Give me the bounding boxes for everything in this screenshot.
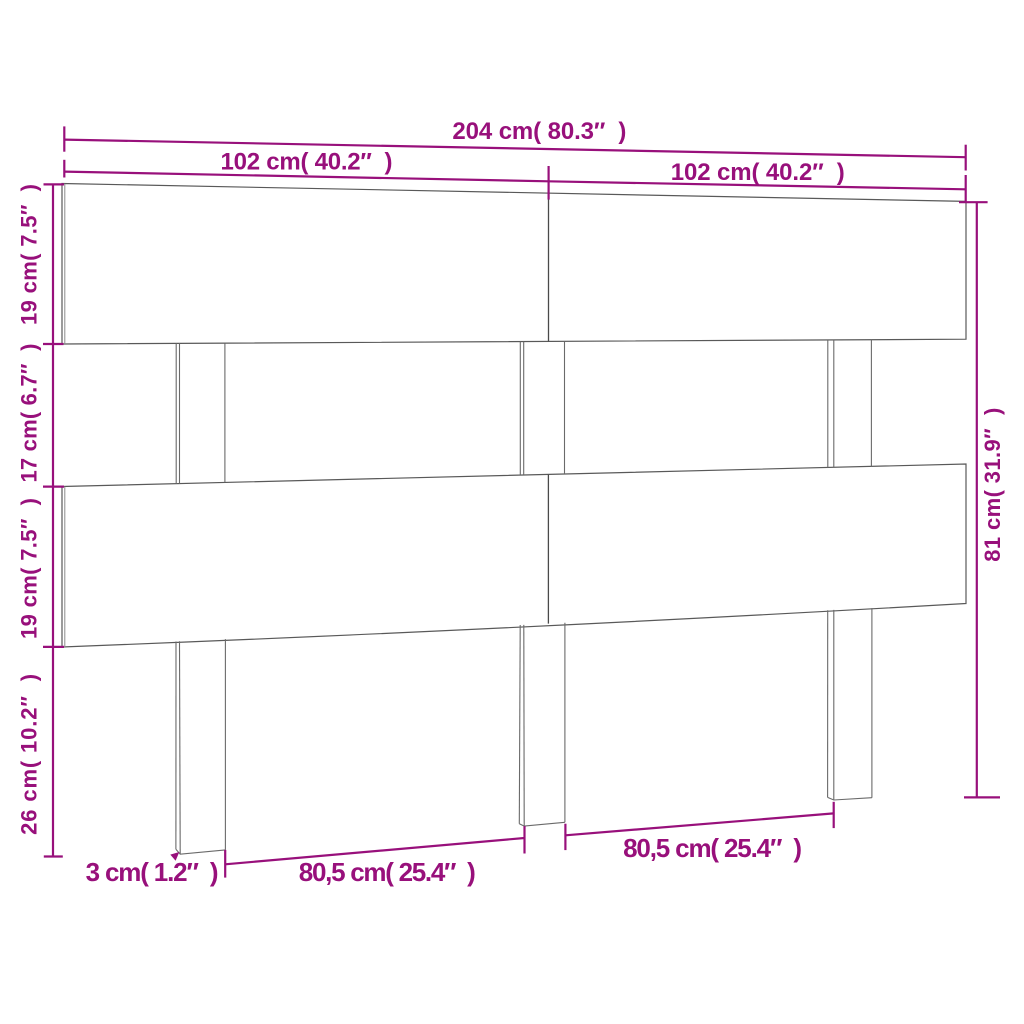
- svg-text:19 cm( 7.5″ ): 19 cm( 7.5″ ): [17, 184, 42, 325]
- svg-text:3 cm( 1.2″ ): 3 cm( 1.2″ ): [86, 857, 219, 887]
- svg-text:17 cm( 6.7″ ): 17 cm( 6.7″ ): [17, 344, 42, 483]
- svg-text:204 cm( 80.3″ ): 204 cm( 80.3″ ): [452, 118, 626, 145]
- svg-text:26 cm( 10.2″ ): 26 cm( 10.2″ ): [17, 674, 42, 835]
- svg-text:81 cm( 31.9″ ): 81 cm( 31.9″ ): [980, 408, 1005, 562]
- svg-text:102 cm( 40.2″ ): 102 cm( 40.2″ ): [221, 149, 393, 176]
- svg-text:19 cm( 7.5″ ): 19 cm( 7.5″ ): [17, 498, 42, 639]
- svg-text:102 cm( 40.2″ ): 102 cm( 40.2″ ): [671, 159, 845, 186]
- svg-text:80,5 cm( 25.4″ ): 80,5 cm( 25.4″ ): [299, 857, 476, 887]
- svg-text:80,5 cm( 25.4″ ): 80,5 cm( 25.4″ ): [623, 833, 802, 863]
